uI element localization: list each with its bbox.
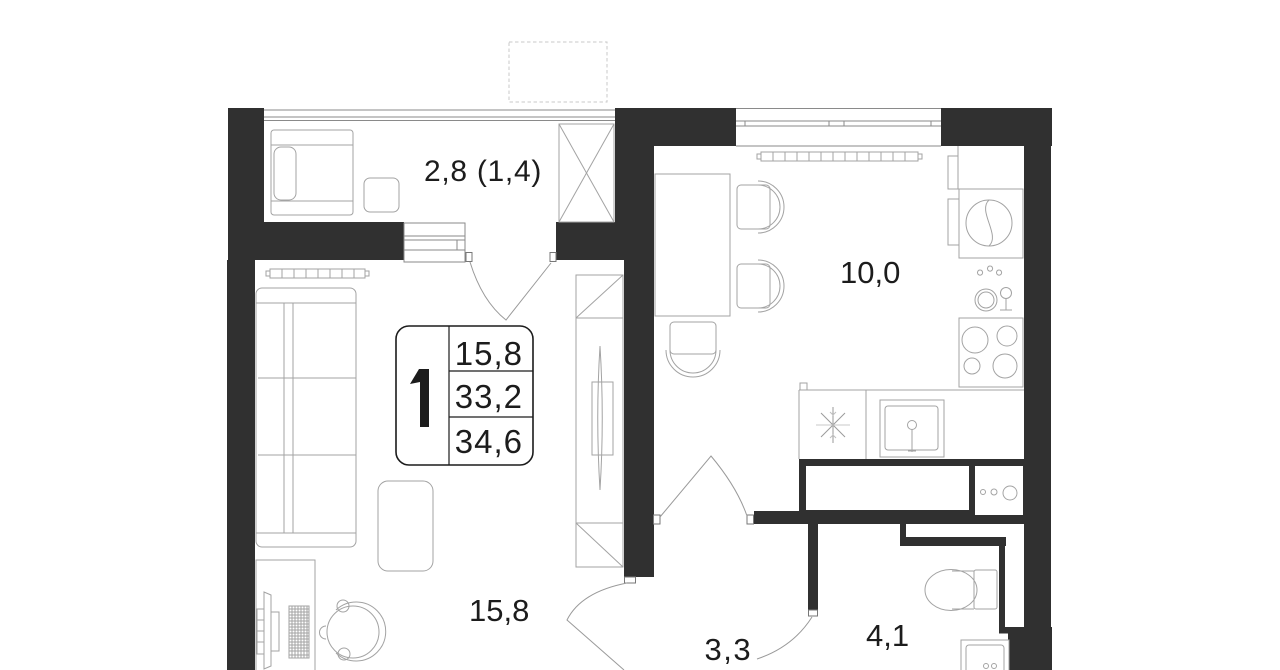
svg-text:4,1: 4,1 (866, 618, 909, 653)
svg-text:15,8: 15,8 (469, 593, 529, 628)
svg-text:3,3: 3,3 (705, 632, 753, 667)
svg-text:33,2: 33,2 (455, 378, 523, 415)
svg-text:34,6: 34,6 (455, 423, 523, 460)
svg-text:15,8: 15,8 (455, 335, 523, 372)
svg-text:10,0: 10,0 (840, 255, 900, 290)
svg-text:2,8 (1,4): 2,8 (1,4) (424, 155, 542, 188)
